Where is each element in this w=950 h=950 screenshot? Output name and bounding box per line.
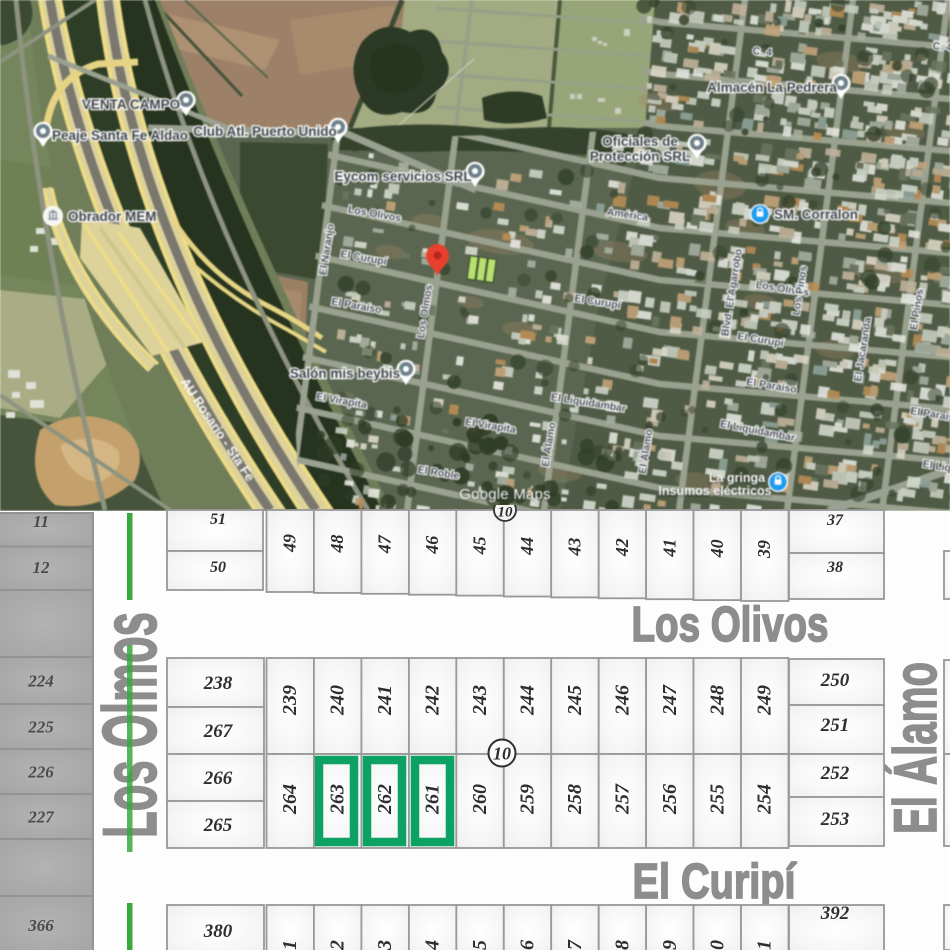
svg-text:10: 10 xyxy=(498,505,514,521)
svg-text:Almacén La Pedrera: Almacén La Pedrera xyxy=(707,80,837,95)
svg-text:Los Olivos: Los Olivos xyxy=(632,598,829,652)
svg-text:Obrador MEM: Obrador MEM xyxy=(68,209,157,224)
svg-text:266: 266 xyxy=(203,768,233,789)
svg-text:255: 255 xyxy=(706,784,728,815)
svg-text:42: 42 xyxy=(612,538,632,557)
svg-text:48: 48 xyxy=(327,535,347,554)
svg-text:249: 249 xyxy=(754,685,776,716)
svg-text:385: 385 xyxy=(469,940,491,950)
svg-text:238: 238 xyxy=(203,673,233,694)
svg-text:258: 258 xyxy=(564,784,586,815)
svg-text:366: 366 xyxy=(27,916,54,935)
svg-text:261: 261 xyxy=(422,784,444,815)
svg-text:391: 391 xyxy=(754,940,776,950)
svg-text:46: 46 xyxy=(422,536,442,555)
svg-text:382: 382 xyxy=(327,940,349,950)
svg-text:Eycom servicios SRL: Eycom servicios SRL xyxy=(334,169,471,184)
svg-text:226: 226 xyxy=(27,763,54,782)
svg-text:SM. Corralon: SM. Corralon xyxy=(774,207,858,222)
svg-text:260: 260 xyxy=(469,784,491,815)
svg-text:239: 239 xyxy=(279,685,301,716)
svg-text:10: 10 xyxy=(493,744,511,764)
svg-text:38: 38 xyxy=(826,559,843,576)
svg-text:246: 246 xyxy=(611,685,633,716)
svg-text:267: 267 xyxy=(203,721,234,742)
svg-text:256: 256 xyxy=(659,784,681,815)
svg-text:43: 43 xyxy=(564,538,584,557)
svg-text:264: 264 xyxy=(279,784,301,815)
svg-text:392: 392 xyxy=(820,903,850,924)
svg-text:44: 44 xyxy=(517,537,537,556)
svg-text:39: 39 xyxy=(754,540,774,559)
svg-text:263: 263 xyxy=(327,784,349,815)
svg-text:C. 4: C. 4 xyxy=(752,45,772,59)
svg-text:241: 241 xyxy=(374,685,396,716)
svg-text:12: 12 xyxy=(33,558,51,577)
svg-text:Protección SRL: Protección SRL xyxy=(590,149,691,164)
svg-text:247: 247 xyxy=(659,684,681,716)
svg-text:257: 257 xyxy=(611,783,633,815)
svg-text:389: 389 xyxy=(659,940,681,950)
svg-text:386: 386 xyxy=(517,940,539,950)
svg-text:La gringa: La gringa xyxy=(709,471,766,485)
svg-text:240: 240 xyxy=(327,685,349,716)
svg-text:383: 383 xyxy=(374,940,396,950)
svg-text:Salón mis beybis: Salón mis beybis xyxy=(290,366,400,381)
svg-text:387: 387 xyxy=(564,939,586,950)
svg-text:C. 4: C. 4 xyxy=(932,40,950,54)
svg-text:262: 262 xyxy=(374,784,396,815)
svg-text:VENTA CAMPO: VENTA CAMPO xyxy=(82,97,180,112)
svg-text:381: 381 xyxy=(279,940,301,950)
svg-text:51: 51 xyxy=(210,511,226,528)
svg-text:250: 250 xyxy=(820,670,850,691)
svg-text:388: 388 xyxy=(611,940,633,950)
svg-text:Club Atl. Puerto Unido: Club Atl. Puerto Unido xyxy=(193,124,336,139)
svg-text:248: 248 xyxy=(706,685,728,716)
svg-text:251: 251 xyxy=(820,715,850,736)
svg-text:243: 243 xyxy=(469,685,491,716)
svg-text:380: 380 xyxy=(203,921,233,942)
svg-text:El Curipí: El Curipí xyxy=(633,855,797,909)
svg-text:259: 259 xyxy=(517,784,539,815)
svg-text:40: 40 xyxy=(707,539,727,558)
svg-text:Google Maps: Google Maps xyxy=(459,486,550,503)
svg-text:265: 265 xyxy=(203,815,233,836)
svg-text:225: 225 xyxy=(27,718,54,737)
svg-text:Insumos eléctricos: Insumos eléctricos xyxy=(658,484,771,498)
svg-text:50: 50 xyxy=(210,559,226,576)
svg-text:Peaje Santa Fe Aldao: Peaje Santa Fe Aldao xyxy=(52,128,188,143)
svg-text:253: 253 xyxy=(820,809,850,830)
svg-text:244: 244 xyxy=(517,685,539,716)
svg-text:41: 41 xyxy=(659,539,679,558)
svg-text:227: 227 xyxy=(27,808,55,827)
svg-text:384: 384 xyxy=(422,940,444,950)
svg-text:37: 37 xyxy=(826,512,844,529)
svg-text:224: 224 xyxy=(27,672,54,691)
svg-text:390: 390 xyxy=(706,940,728,950)
svg-text:245: 245 xyxy=(564,685,586,716)
svg-text:49: 49 xyxy=(280,534,300,553)
svg-text:47: 47 xyxy=(375,534,395,554)
svg-text:45: 45 xyxy=(470,536,490,555)
svg-text:252: 252 xyxy=(820,763,850,784)
svg-text:254: 254 xyxy=(754,784,776,815)
svg-text:242: 242 xyxy=(422,685,444,716)
svg-text:Oficiales de: Oficiales de xyxy=(602,134,678,149)
svg-text:El Álamo: El Álamo xyxy=(882,662,949,834)
svg-text:11: 11 xyxy=(33,512,49,531)
